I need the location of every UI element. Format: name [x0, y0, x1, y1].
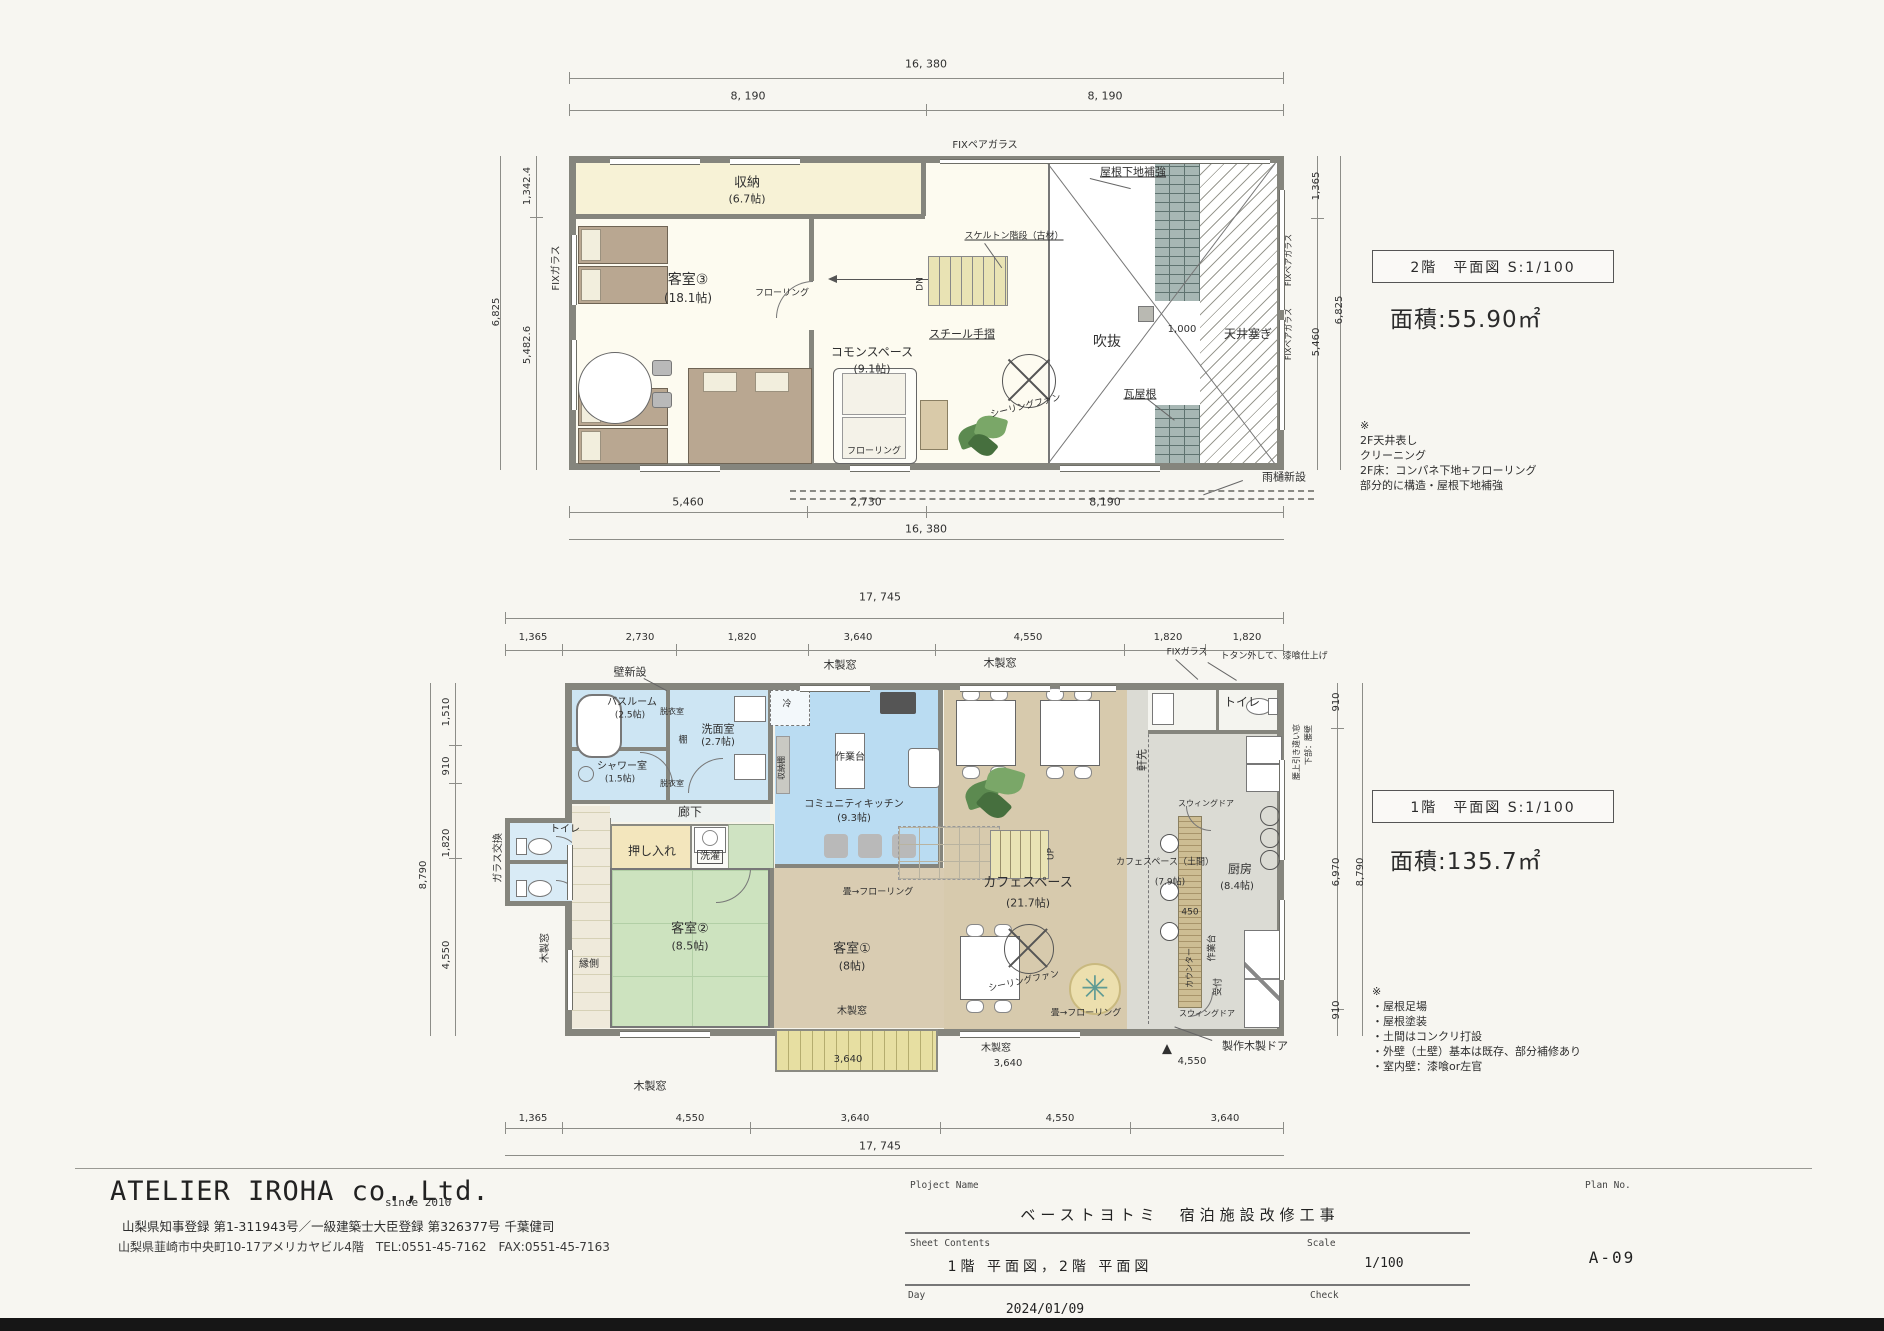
- window-note: 下部：腰壁: [1305, 725, 1313, 765]
- dim: 1,365: [519, 1114, 548, 1124]
- check-label: Check: [1310, 1290, 1339, 1301]
- room-label-corridor: 廊下: [678, 806, 702, 818]
- room-size: (8帖): [839, 961, 866, 972]
- toilet-tank: [516, 880, 527, 897]
- dim: 4,550: [442, 941, 452, 970]
- fix-pair-glass-label: FIXペアガラス: [952, 141, 1017, 151]
- laundry-label: 洗濯: [697, 850, 723, 864]
- dim-line: [505, 618, 1284, 619]
- steel-handrail-label: スチール手摺: [929, 329, 995, 340]
- new-wall-label: 壁新設: [614, 667, 647, 678]
- wood-window-label: 木製窓: [984, 658, 1017, 669]
- window: [960, 685, 1050, 692]
- window: [960, 1031, 1080, 1038]
- scan-edge: [0, 1318, 1884, 1331]
- toilet-fixture: [528, 880, 552, 897]
- wall: [1216, 690, 1219, 730]
- skeleton-stair: [928, 256, 1008, 306]
- void-post: [1138, 306, 1154, 322]
- tick: [1124, 644, 1125, 656]
- room-label-guestroom3: 客室③: [668, 273, 709, 287]
- dim: 910: [1332, 1000, 1342, 1019]
- dim: 4,550: [676, 1114, 705, 1124]
- dim: 3,640: [834, 1055, 863, 1065]
- tick: [1283, 506, 1284, 518]
- window-note: 腰上引き違い窓: [1293, 724, 1301, 780]
- dim: 16, 380: [905, 524, 947, 535]
- company-registration: 山梨県知事登録 第1-311943号／一級建築士大臣登録 第326377号 千葉…: [122, 1216, 554, 1235]
- titleblock-rule: [905, 1232, 1470, 1234]
- dim: 1,365: [519, 633, 548, 643]
- tatami-to-flooring-note: 畳→フローリング: [1051, 1010, 1122, 1019]
- chair: [966, 1000, 984, 1013]
- dim: 3,640: [1211, 1114, 1240, 1124]
- wash-basin: [1152, 693, 1174, 725]
- dim: 1,820: [442, 829, 452, 858]
- dim: 4,550: [1014, 633, 1043, 643]
- dim: 1,342.4: [523, 167, 533, 205]
- pillow: [581, 431, 601, 461]
- toilet-fixture: [528, 838, 552, 855]
- company-since: since 2010: [385, 1196, 451, 1209]
- dim: 6,825: [1335, 296, 1345, 325]
- window: [567, 845, 573, 900]
- tick: [1311, 218, 1324, 219]
- pillow: [581, 269, 601, 301]
- room-label-common-space: コモンスペース: [831, 346, 913, 358]
- tatami-change-zone: [898, 826, 1000, 880]
- dim: 1,510: [442, 698, 452, 727]
- vanity-sink: [734, 754, 766, 780]
- void-handrail: [1048, 163, 1050, 463]
- kitchen-sink: [1246, 736, 1282, 764]
- custom-wood-door-label: 製作木製ドア: [1222, 1041, 1288, 1052]
- dim-line: [569, 78, 1284, 79]
- note-line: ・屋根足場: [1372, 999, 1581, 1014]
- dim-line: [455, 683, 456, 1036]
- wall: [921, 163, 926, 216]
- dim: 2,730: [850, 497, 882, 508]
- tick: [449, 783, 462, 784]
- note-line: ・土間はコンクリ打設: [1372, 1029, 1581, 1044]
- tatami-to-flooring-note: 畳→フローリング: [843, 889, 914, 898]
- company-address: 山梨県韮崎市中央町10-17アメリカヤビル4階 TEL:0551-45-7162…: [118, 1238, 610, 1255]
- storage-shelf-label: 収納棚: [778, 756, 786, 780]
- shelving-unit: [1244, 930, 1280, 1028]
- leader-line: [1203, 480, 1243, 495]
- tile-roof-patch: [1155, 405, 1200, 463]
- note-line: ・室内壁：漆喰or左官: [1372, 1059, 1581, 1074]
- reception-label: 受付: [1215, 978, 1224, 996]
- window: [567, 950, 573, 1010]
- tick: [807, 506, 808, 518]
- rain-gutter-line: [790, 490, 1314, 492]
- note-line: ※: [1372, 984, 1581, 999]
- dim: 1,820: [1154, 633, 1183, 643]
- room-label-dressing: 脱衣室: [660, 780, 684, 788]
- tick: [935, 644, 936, 656]
- window: [730, 158, 800, 165]
- double-bed: [688, 368, 812, 464]
- shelf-label: 棚: [678, 737, 687, 746]
- swing-door-label: スウィングドア: [1178, 800, 1234, 808]
- room-label-cafe-doma: カフェスペース（土間）: [1116, 859, 1214, 868]
- bed: [578, 226, 668, 264]
- floor-cushion: [824, 834, 848, 858]
- glass-replace-label: ガラス交換: [494, 833, 504, 883]
- fix-pair-glass-label: FIXペアガラス: [1285, 234, 1293, 286]
- stair-up: [990, 830, 1049, 879]
- rattan-star-icon: ✳: [1069, 963, 1121, 1015]
- room-label-washroom: 洗面室: [702, 724, 735, 735]
- tick: [562, 1122, 563, 1134]
- sheet-contents-label: Sheet Contents: [910, 1238, 990, 1249]
- kitchen-sink: [908, 748, 940, 788]
- window: [1279, 760, 1285, 860]
- pillow: [755, 372, 789, 392]
- stair-arrow-line: [836, 279, 928, 280]
- sofa-cushion: [842, 373, 906, 415]
- tick: [808, 644, 809, 656]
- window: [1060, 685, 1116, 692]
- tick: [926, 506, 927, 518]
- chair: [962, 766, 980, 779]
- cafe-table: [1040, 700, 1100, 766]
- burner: [1260, 828, 1280, 848]
- fix-pair-glass-label: FIXペアガラス: [1285, 308, 1293, 360]
- fix-glass-label: FIXガラス: [1167, 649, 1208, 658]
- wood-window-label: 木製窓: [981, 1044, 1011, 1054]
- wall: [809, 219, 814, 281]
- tick: [940, 1122, 941, 1134]
- ceiling-close-label: 天井塞ぎ: [1224, 328, 1272, 340]
- dim-line: [1317, 156, 1318, 470]
- flooring-note: フローリング: [755, 290, 809, 299]
- worktable-label: 作業台: [835, 753, 865, 763]
- dim-line: [505, 1155, 1284, 1156]
- fix-glass-label: FIXガラス: [552, 245, 562, 290]
- drawing-sheet: 16, 3808, 1908, 190FIXペアガラス1,342.45,482.…: [0, 0, 1884, 1331]
- wood-window-label: 木製窓: [634, 1081, 667, 1092]
- note-line: ・屋根塗装: [1372, 1014, 1581, 1029]
- chair: [994, 1000, 1012, 1013]
- note-line: 2F床：コンパネ下地+フローリング: [1360, 463, 1537, 478]
- eave-label: 軒先: [1137, 749, 1148, 771]
- fridge-label: 冷: [782, 701, 791, 710]
- leader-line: [1207, 662, 1236, 681]
- dim: 17, 745: [859, 1141, 901, 1152]
- flooring-note: フローリング: [847, 448, 901, 457]
- dim: 5,460: [1312, 328, 1322, 357]
- dim: 1,000: [1168, 325, 1197, 335]
- tick: [1331, 728, 1344, 729]
- room-label-cafe-space: カフェスペース: [983, 877, 1072, 890]
- room-size: (8.4帖): [1220, 882, 1254, 892]
- stove: [880, 692, 916, 714]
- window: [1279, 900, 1285, 980]
- room-label-guestroom2: 客室②: [671, 923, 709, 936]
- shower-icon: [578, 766, 594, 782]
- stool: [1160, 834, 1179, 853]
- tick: [505, 644, 506, 656]
- floor2-area: 面積:55.90㎡: [1390, 300, 1542, 334]
- dim-line: [569, 539, 1284, 540]
- wood-window-label: 木製窓: [541, 933, 551, 963]
- room-label-storage: 収納: [734, 177, 760, 190]
- tick: [750, 1122, 751, 1134]
- washer-drum: [702, 830, 718, 846]
- room-size: (9.3帖): [837, 814, 871, 824]
- window: [620, 1031, 710, 1038]
- dim: 5,460: [672, 497, 704, 508]
- window: [640, 465, 720, 472]
- swing-door-label: スウィングドア: [1179, 1010, 1235, 1018]
- kitchen-sink: [1246, 764, 1282, 792]
- dim: 1,820: [1233, 633, 1262, 643]
- note-line: 2F天井表し: [1360, 433, 1537, 448]
- window: [571, 340, 577, 410]
- round-table: [578, 352, 652, 424]
- dim: 1,820: [728, 633, 757, 643]
- chair: [652, 392, 672, 408]
- stool: [1160, 922, 1179, 941]
- worktable-label: 作業台: [1209, 934, 1218, 961]
- dim: 8,190: [1089, 497, 1121, 508]
- dim-overall-width-2f: 16, 380: [905, 59, 947, 70]
- dim-overall-width-1f: 17, 745: [859, 592, 901, 603]
- bed: [578, 266, 668, 304]
- room-label-kitchen: 厨房: [1228, 863, 1252, 875]
- window: [610, 158, 700, 165]
- note-line: クリーニング: [1360, 448, 1537, 463]
- room-label-guestroom1: 客室①: [833, 943, 871, 956]
- window: [850, 465, 910, 472]
- tick: [1283, 1122, 1284, 1134]
- dim: 8, 190: [731, 91, 766, 102]
- room-size: (1.5帖): [605, 776, 635, 785]
- burner: [1260, 850, 1280, 870]
- titleblock-rule: [905, 1284, 1470, 1286]
- stair-up-label: UP: [1048, 848, 1057, 860]
- dim: 450: [1181, 909, 1198, 918]
- tick: [505, 1122, 506, 1134]
- room-label-toilet: トイレ: [550, 825, 580, 835]
- floor2-title-box: 2階 平面図 S:1/100: [1372, 250, 1614, 283]
- ceiling-close-hatch: [1200, 163, 1277, 463]
- chair: [966, 924, 984, 937]
- wall: [576, 214, 925, 219]
- stair-down-label: DN: [917, 277, 926, 291]
- tick: [1283, 104, 1284, 116]
- tick: [569, 506, 570, 518]
- day-value: 2024/01/09: [1006, 1302, 1084, 1317]
- tick: [1283, 612, 1284, 624]
- tick: [562, 644, 563, 656]
- dim-line: [505, 1128, 1284, 1129]
- dim: 910: [1332, 692, 1342, 711]
- room-label-shower: シャワー室: [597, 762, 647, 772]
- dim: 8,790: [419, 861, 429, 890]
- rain-gutter-label: 雨樋新設: [1262, 472, 1306, 483]
- chair: [1046, 766, 1064, 779]
- tick: [530, 217, 543, 218]
- dim: 910: [442, 756, 452, 775]
- chair: [1074, 766, 1092, 779]
- window: [800, 685, 870, 692]
- stair-note: スケルトン階段（古材）: [964, 233, 1063, 242]
- room-label-dressing: 脱衣室: [660, 708, 684, 716]
- floor2-title: 2階 平面図 S:1/100: [1410, 260, 1575, 276]
- tile-roof-patch: [1155, 163, 1200, 301]
- tick: [1130, 1122, 1131, 1134]
- pillow: [703, 372, 737, 392]
- tick: [926, 104, 927, 116]
- cafe-table: [956, 700, 1016, 766]
- side-table: [920, 400, 948, 450]
- tick: [449, 858, 462, 859]
- window: [1060, 465, 1160, 472]
- floor2-notes: ※2F天井表しクリーニング2F床：コンパネ下地+フローリング部分的に構造・屋根下…: [1360, 418, 1537, 493]
- scale-value: 1/100: [1364, 1256, 1403, 1271]
- dim: 3,640: [994, 1059, 1023, 1069]
- pillow: [581, 229, 601, 261]
- room-label-community-kitchen: コミュニティキッチン: [804, 800, 903, 810]
- entrance-marker: ▲: [1162, 1043, 1172, 1056]
- dim: 8,790: [1356, 858, 1366, 887]
- toilet-tank: [516, 838, 527, 855]
- room-size: (6.7帖): [728, 194, 765, 205]
- plan-no: A-09: [1589, 1248, 1636, 1267]
- dim: 5,482.6: [523, 326, 533, 364]
- plaster-finish-note: トタン外して、漆喰仕上げ: [1220, 653, 1327, 662]
- note-line: 部分的に構造・屋根下地補強: [1360, 478, 1537, 493]
- dim: 6,825: [492, 298, 502, 327]
- room-size: (21.7帖): [1006, 898, 1050, 909]
- dim: 2,730: [626, 633, 655, 643]
- wood-window-label: 木製窓: [824, 660, 857, 671]
- note-line: ・外壁（土壁）基本は既存、部分補修あり: [1372, 1044, 1581, 1059]
- note-line: ※: [1360, 418, 1537, 433]
- room-size: (2.7帖): [701, 738, 735, 748]
- floor1-title-box: 1階 平面図 S:1/100: [1372, 790, 1614, 823]
- dim-line: [430, 683, 431, 1036]
- tick: [449, 745, 462, 746]
- void-label: 吹抜: [1093, 335, 1121, 349]
- leader-line: [1175, 659, 1198, 680]
- tick: [676, 644, 677, 656]
- dim: 4,550: [1178, 1057, 1207, 1067]
- tatami-patch: [728, 824, 774, 870]
- dim-line: [536, 156, 537, 470]
- plan-no-label: Plan No.: [1585, 1180, 1631, 1191]
- project-name: ベーストヨトミ 宿泊施設改修工事: [1020, 1204, 1339, 1225]
- dim: 4,550: [1046, 1114, 1075, 1124]
- dim: 6,970: [1332, 858, 1342, 887]
- fix-glass-window: [940, 159, 1270, 164]
- floor1-engawa: [572, 806, 610, 1028]
- wall: [770, 868, 774, 1028]
- window: [571, 235, 577, 305]
- day-label: Day: [908, 1290, 925, 1301]
- sheet-contents: 1階 平面図，2階 平面図: [948, 1256, 1153, 1276]
- tick: [505, 612, 506, 624]
- floor1-title: 1階 平面図 S:1/100: [1410, 800, 1575, 816]
- floor-cushion: [858, 834, 882, 858]
- chair: [652, 360, 672, 376]
- room-label-toilet: トイレ: [1224, 696, 1260, 708]
- room-size: (8.5帖): [671, 941, 708, 952]
- scale-label: Scale: [1307, 1238, 1336, 1249]
- titleblock-top-rule: [75, 1168, 1812, 1169]
- dim: 3,640: [841, 1114, 870, 1124]
- floor1-area: 面積:135.7㎡: [1390, 842, 1542, 876]
- floor1-notes: ※・屋根足場・屋根塗装・土間はコンクリ打設・外壁（土壁）基本は既存、部分補修あり…: [1372, 984, 1581, 1074]
- stair-arrowhead: [828, 275, 837, 283]
- room-size: (18.1帖): [664, 292, 712, 304]
- dim: 8, 190: [1088, 91, 1123, 102]
- tick: [569, 72, 570, 84]
- dim: 3,640: [844, 633, 873, 643]
- tick: [569, 104, 570, 116]
- tick: [1283, 72, 1284, 84]
- room-size: (9.1帖): [853, 364, 890, 375]
- counter-label: カウンター: [1186, 948, 1194, 988]
- tile-roof-label: 瓦屋根: [1124, 389, 1157, 400]
- room-size: (2.5帖): [615, 712, 645, 721]
- room-size: (7.9帖): [1155, 879, 1185, 888]
- wood-deck: [775, 1029, 938, 1072]
- room-label-engawa: 縁側: [579, 960, 599, 970]
- burner: [1260, 806, 1280, 826]
- dim: 1,365: [1312, 172, 1322, 201]
- wood-window-label: 木製窓: [837, 1007, 867, 1017]
- bed: [578, 428, 668, 464]
- toilet-tank: [1268, 698, 1278, 715]
- room-label-closet: 押し入れ: [628, 845, 676, 857]
- vanity-sink: [734, 696, 766, 722]
- roof-reinforce-label: 屋根下地補強: [1100, 167, 1166, 178]
- room-label-bathroom: バスルーム: [607, 698, 657, 708]
- project-name-label: Ploject Name: [910, 1180, 979, 1191]
